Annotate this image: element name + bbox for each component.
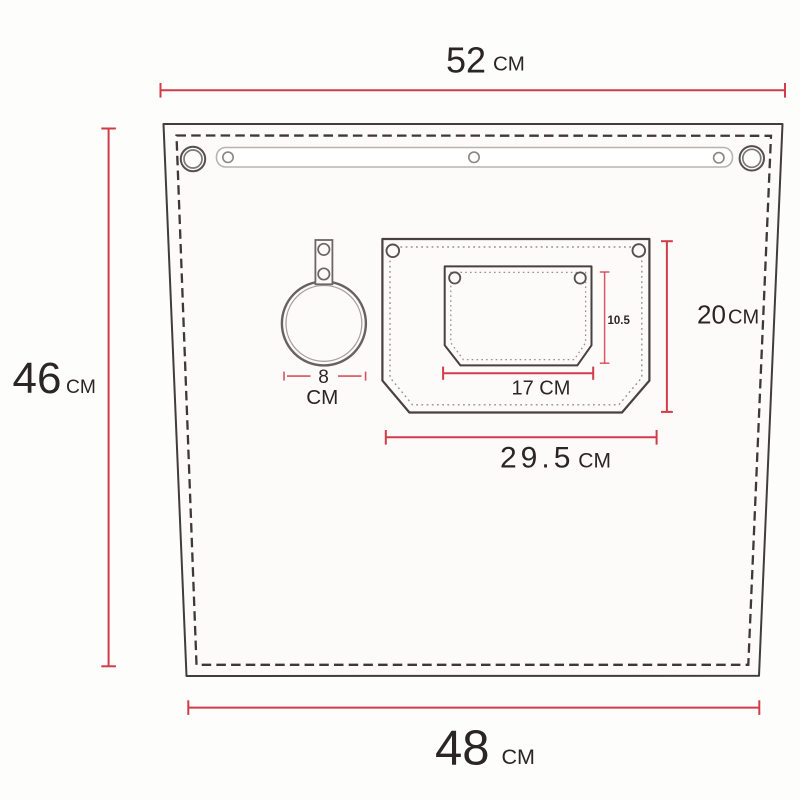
svg-text:17 CM: 17 CM — [512, 378, 571, 400]
svg-text:8: 8 — [318, 367, 329, 388]
svg-text:CM: CM — [66, 377, 96, 398]
svg-text:46: 46 — [13, 354, 62, 403]
svg-text:CM: CM — [578, 449, 611, 472]
svg-text:48: 48 — [435, 722, 490, 776]
svg-text:29.5: 29.5 — [500, 442, 574, 475]
svg-text:10.5: 10.5 — [608, 315, 631, 327]
svg-text:CM: CM — [502, 745, 535, 769]
svg-text:CM: CM — [728, 307, 759, 329]
svg-text:20: 20 — [697, 300, 726, 330]
svg-text:CM: CM — [493, 53, 525, 76]
svg-text:52: 52 — [446, 40, 486, 81]
svg-text:CM: CM — [306, 386, 338, 409]
